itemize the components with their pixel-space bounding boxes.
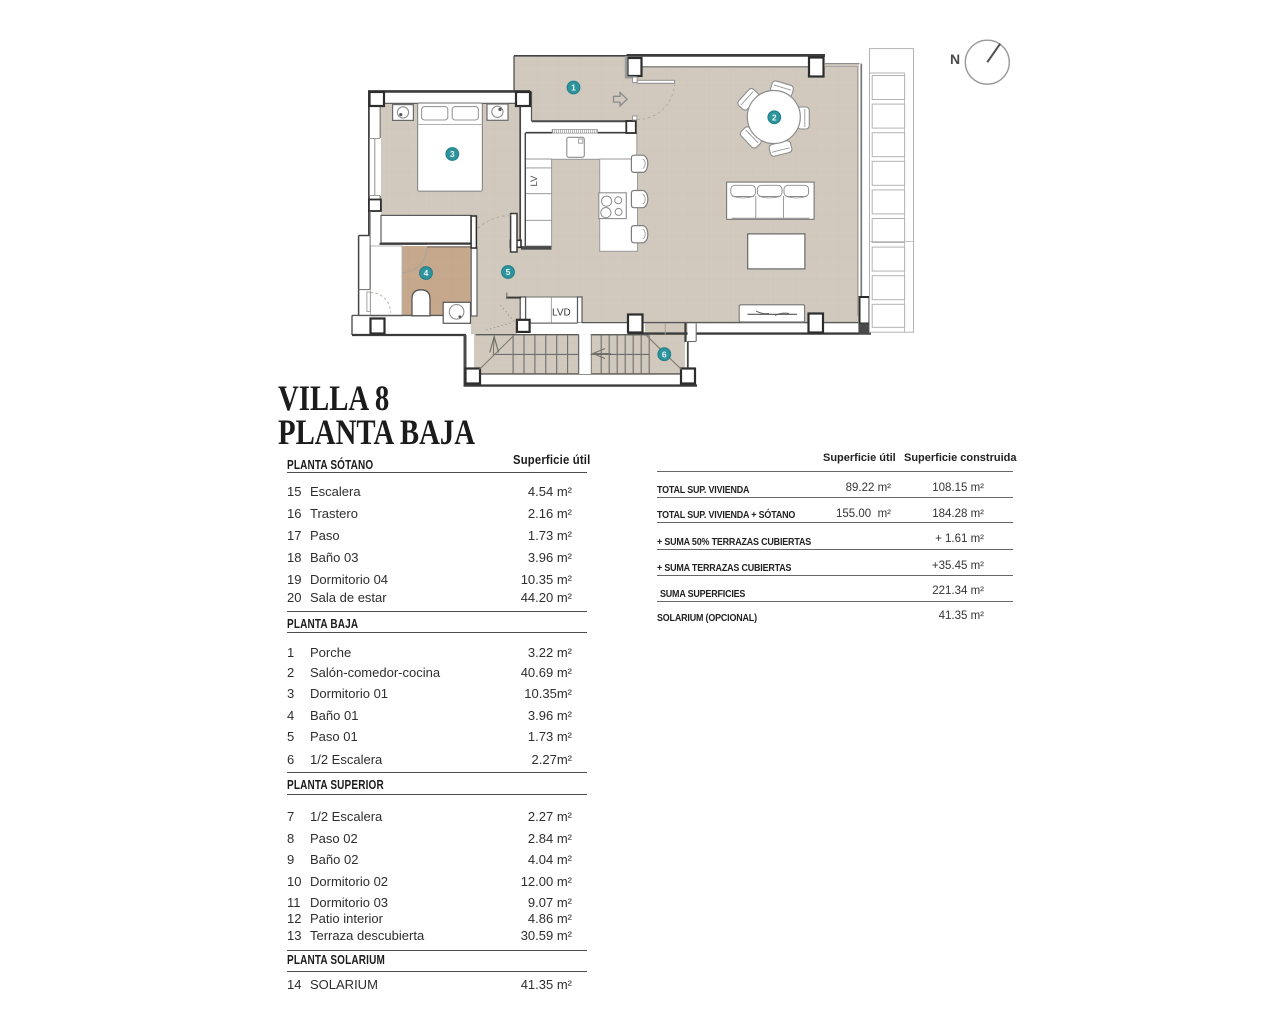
svg-text:2: 2 <box>772 112 777 122</box>
svg-text:4: 4 <box>424 268 429 278</box>
svg-text:LVD: LVD <box>552 308 571 319</box>
svg-text:3: 3 <box>450 149 455 159</box>
svg-text:6: 6 <box>662 349 667 359</box>
svg-text:N: N <box>950 51 960 67</box>
svg-text:1: 1 <box>571 83 576 93</box>
svg-text:5: 5 <box>506 267 511 277</box>
svg-text:LV: LV <box>529 175 540 187</box>
